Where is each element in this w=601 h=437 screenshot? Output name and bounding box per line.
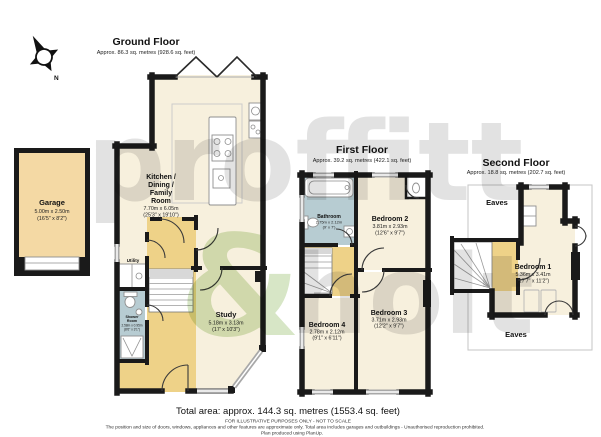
toilet-cistern — [124, 292, 137, 297]
ground-floor-title: Ground Floor — [112, 36, 179, 48]
bay-corner — [228, 386, 235, 393]
disclaimer-line-2: The position and size of doors, windows,… — [106, 425, 485, 431]
shower-room-dims-ft: (8'6" x 3'1") — [124, 328, 140, 332]
garage-label: Garage — [39, 198, 65, 207]
total-area-text: Total area: approx. 144.3 sq. metres (15… — [176, 406, 400, 417]
utility-appliances — [118, 264, 146, 288]
hallway-lower — [117, 361, 147, 392]
disclaimer-line-1: FOR ILLUSTRATIVE PURPOSES ONLY - NOT TO … — [225, 419, 351, 425]
disclaimer-line-3: Plan produced using PlanUp. — [261, 431, 323, 437]
watermark-word-1: proffitt — [87, 98, 523, 226]
watermark-ampersand: & — [179, 206, 301, 369]
garage-dims-ft: (16'5" x 8'2") — [37, 216, 67, 222]
floorplan-page: N Ground Floor Approx. 86.3 sq. metres (… — [0, 0, 601, 437]
shower-tray-icon — [121, 336, 143, 358]
utility-label: Utility — [127, 258, 140, 263]
chimney-breast — [571, 252, 580, 280]
garage-dims-m: 5.00m x 2.50m — [34, 209, 70, 215]
garage-door — [25, 257, 79, 270]
compass-north-label: N — [54, 75, 59, 82]
watermark-word-2: holt — [290, 231, 534, 359]
shower-room-label-2: Room — [127, 319, 137, 323]
ground-floor-area: Approx. 86.3 sq. metres (928.6 sq. feet) — [97, 50, 196, 56]
floorplan-canvas: N Ground Floor Approx. 86.3 sq. metres (… — [0, 0, 601, 437]
garage-plan: Garage 5.00m x 2.50m (16'5" x 8'2") — [14, 148, 90, 276]
toilet-icon — [125, 297, 135, 308]
